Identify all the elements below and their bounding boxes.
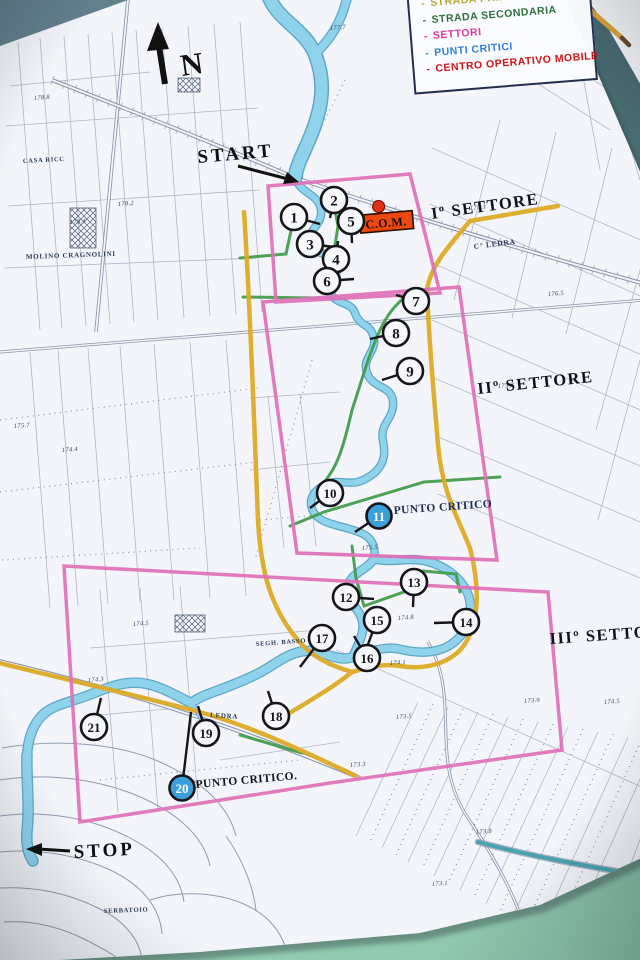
photo-vignette [0, 0, 640, 960]
map-photo: 178.8178.2178.4177.7177.3176.5175.7175.3… [0, 0, 640, 960]
legend: -STRADA PRINCIPALE-STRADA SECONDARIA-SET… [404, 0, 598, 94]
legend-rows: -STRADA PRINCIPALE-STRADA SECONDARIA-SET… [421, 0, 587, 76]
map-sheet-svg: 178.8178.2178.4177.7177.3176.5175.7175.3… [0, 0, 640, 960]
